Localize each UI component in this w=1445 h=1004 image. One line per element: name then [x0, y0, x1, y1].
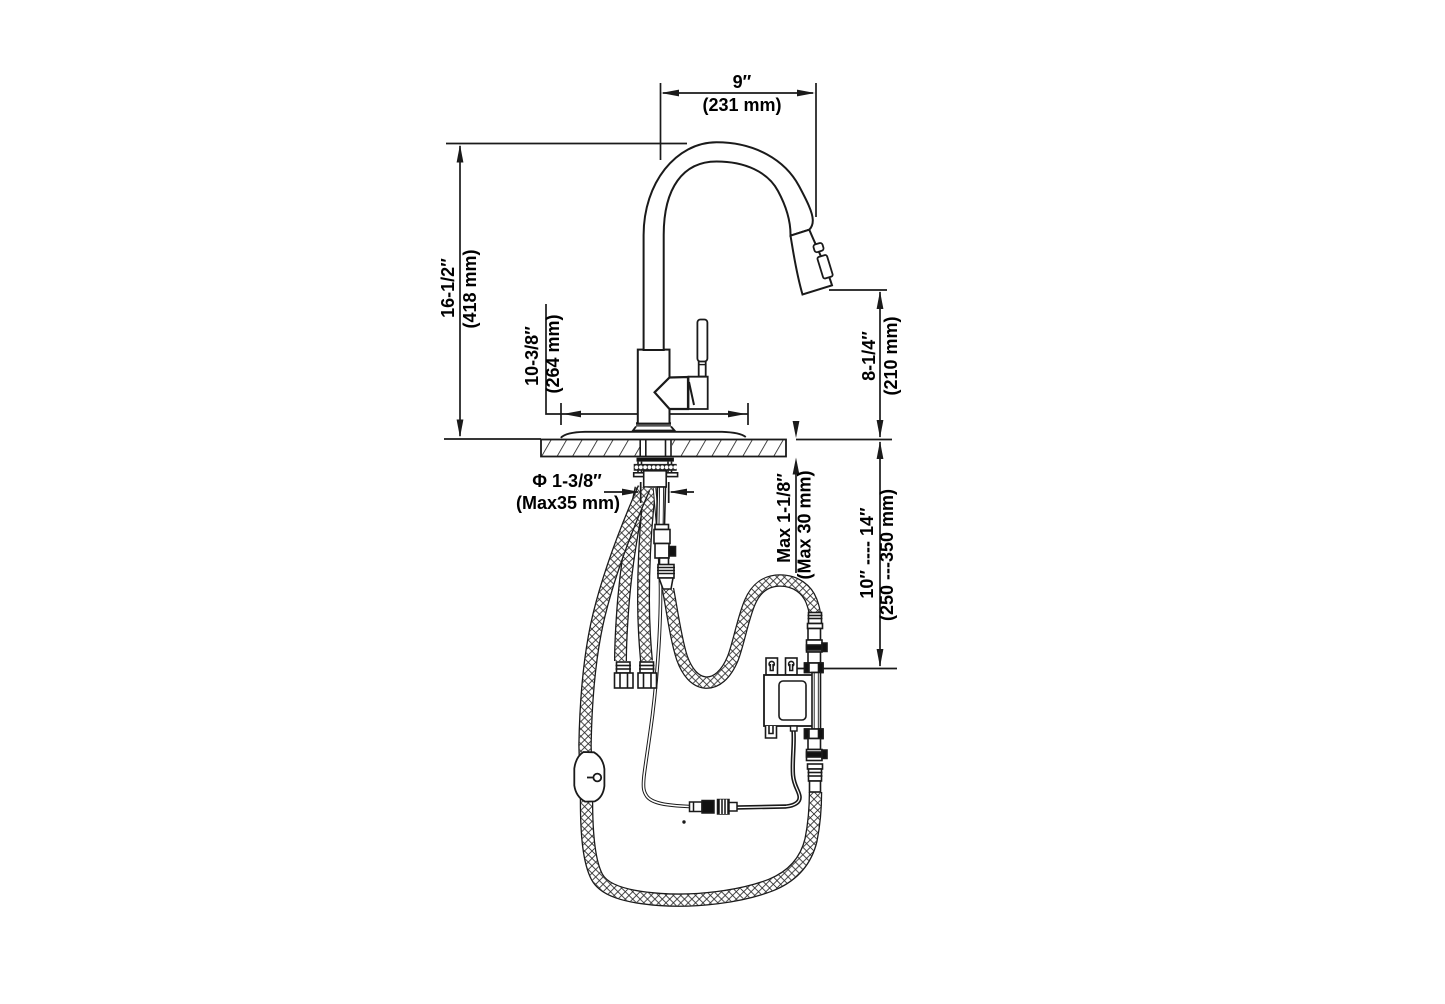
svg-text:16-1/2″: 16-1/2″ [438, 258, 458, 318]
svg-text:(210 mm): (210 mm) [881, 316, 901, 395]
svg-text:(264 mm): (264 mm) [543, 314, 563, 393]
svg-text:Max 1-1/8″: Max 1-1/8″ [774, 473, 794, 563]
svg-text:(418 mm): (418 mm) [460, 249, 480, 328]
svg-text:(231 mm): (231 mm) [702, 95, 781, 115]
svg-text:(Max 30 mm): (Max 30 mm) [795, 470, 815, 579]
svg-text:(250 ---350 mm): (250 ---350 mm) [877, 489, 897, 621]
svg-text:10-3/8″: 10-3/8″ [522, 326, 542, 386]
svg-text:10″ ---- 14″: 10″ ---- 14″ [857, 507, 877, 599]
svg-text:8-1/4″: 8-1/4″ [859, 331, 879, 381]
svg-text:9″: 9″ [733, 72, 752, 92]
svg-text:(Max35 mm): (Max35 mm) [516, 493, 620, 513]
svg-text:Φ 1-3/8″: Φ 1-3/8″ [532, 471, 602, 491]
